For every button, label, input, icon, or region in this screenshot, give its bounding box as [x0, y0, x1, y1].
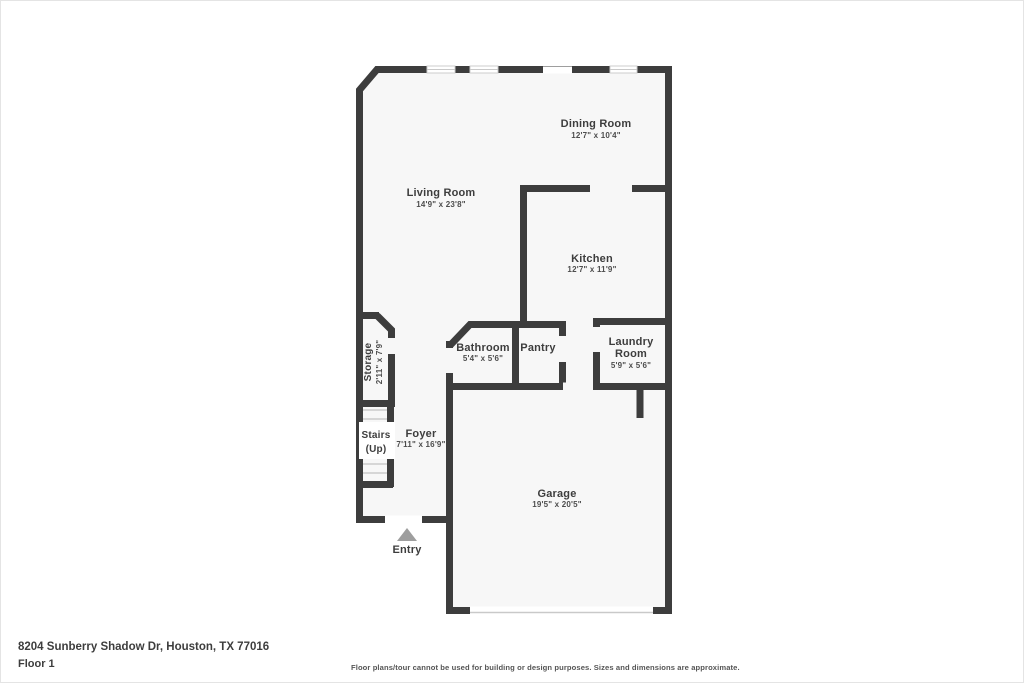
entry-door-opening: [385, 516, 422, 525]
kitchen-label: Kitchen: [571, 253, 613, 265]
bathroom-door-opening: [446, 348, 454, 373]
living-room-label: Living Room: [407, 187, 476, 199]
floorplan-page: Dining Room 12'7" x 10'4" Living Room 14…: [0, 0, 1024, 683]
dining-room-label: Dining Room: [561, 118, 632, 130]
pantry-label: Pantry: [520, 342, 556, 354]
floor-label: Floor 1: [18, 658, 55, 670]
bathroom-label: Bathroom: [456, 342, 510, 354]
dining-room-dims: 12'7" x 10'4": [571, 131, 621, 140]
laundry-room-label-line2: Room: [615, 348, 647, 360]
foyer-label: Foyer: [406, 428, 437, 440]
foyer-dims: 7'11" x 16'9": [396, 440, 445, 449]
hallway-garage-opening: [563, 383, 593, 392]
wall-opening: [543, 67, 572, 74]
stairs-label-line1: Stairs: [362, 430, 391, 441]
bathroom-dims: 5'4" x 5'6": [463, 354, 503, 363]
entry-label: Entry: [392, 544, 422, 556]
disclaimer: Floor plans/tour cannot be used for buil…: [351, 663, 740, 672]
storage-dims: 2'11" x 7'9": [375, 340, 384, 385]
laundry-room-label-line1: Laundry: [609, 336, 654, 348]
garage-dims: 19'5" x 20'5": [532, 500, 582, 509]
floorplan-canvas: Dining Room 12'7" x 10'4" Living Room 14…: [0, 0, 1024, 683]
address: 8204 Sunberry Shadow Dr, Houston, TX 770…: [18, 641, 269, 653]
laundry-room-dims: 5'9" x 5'6": [611, 361, 651, 370]
garage-door-opening: [470, 607, 653, 616]
kitchen-dims: 12'7" x 11'9": [567, 265, 616, 274]
laundry-door-opening: [593, 327, 601, 352]
storage-door-opening: [388, 338, 396, 354]
living-room-dims: 14'9" x 23'8": [416, 200, 466, 209]
storage-label: Storage: [363, 342, 374, 381]
entry-arrow-icon: [397, 528, 417, 541]
garage-label: Garage: [537, 488, 576, 500]
pantry-door-opening: [559, 336, 567, 362]
stairs-label-line2: (Up): [366, 444, 387, 455]
